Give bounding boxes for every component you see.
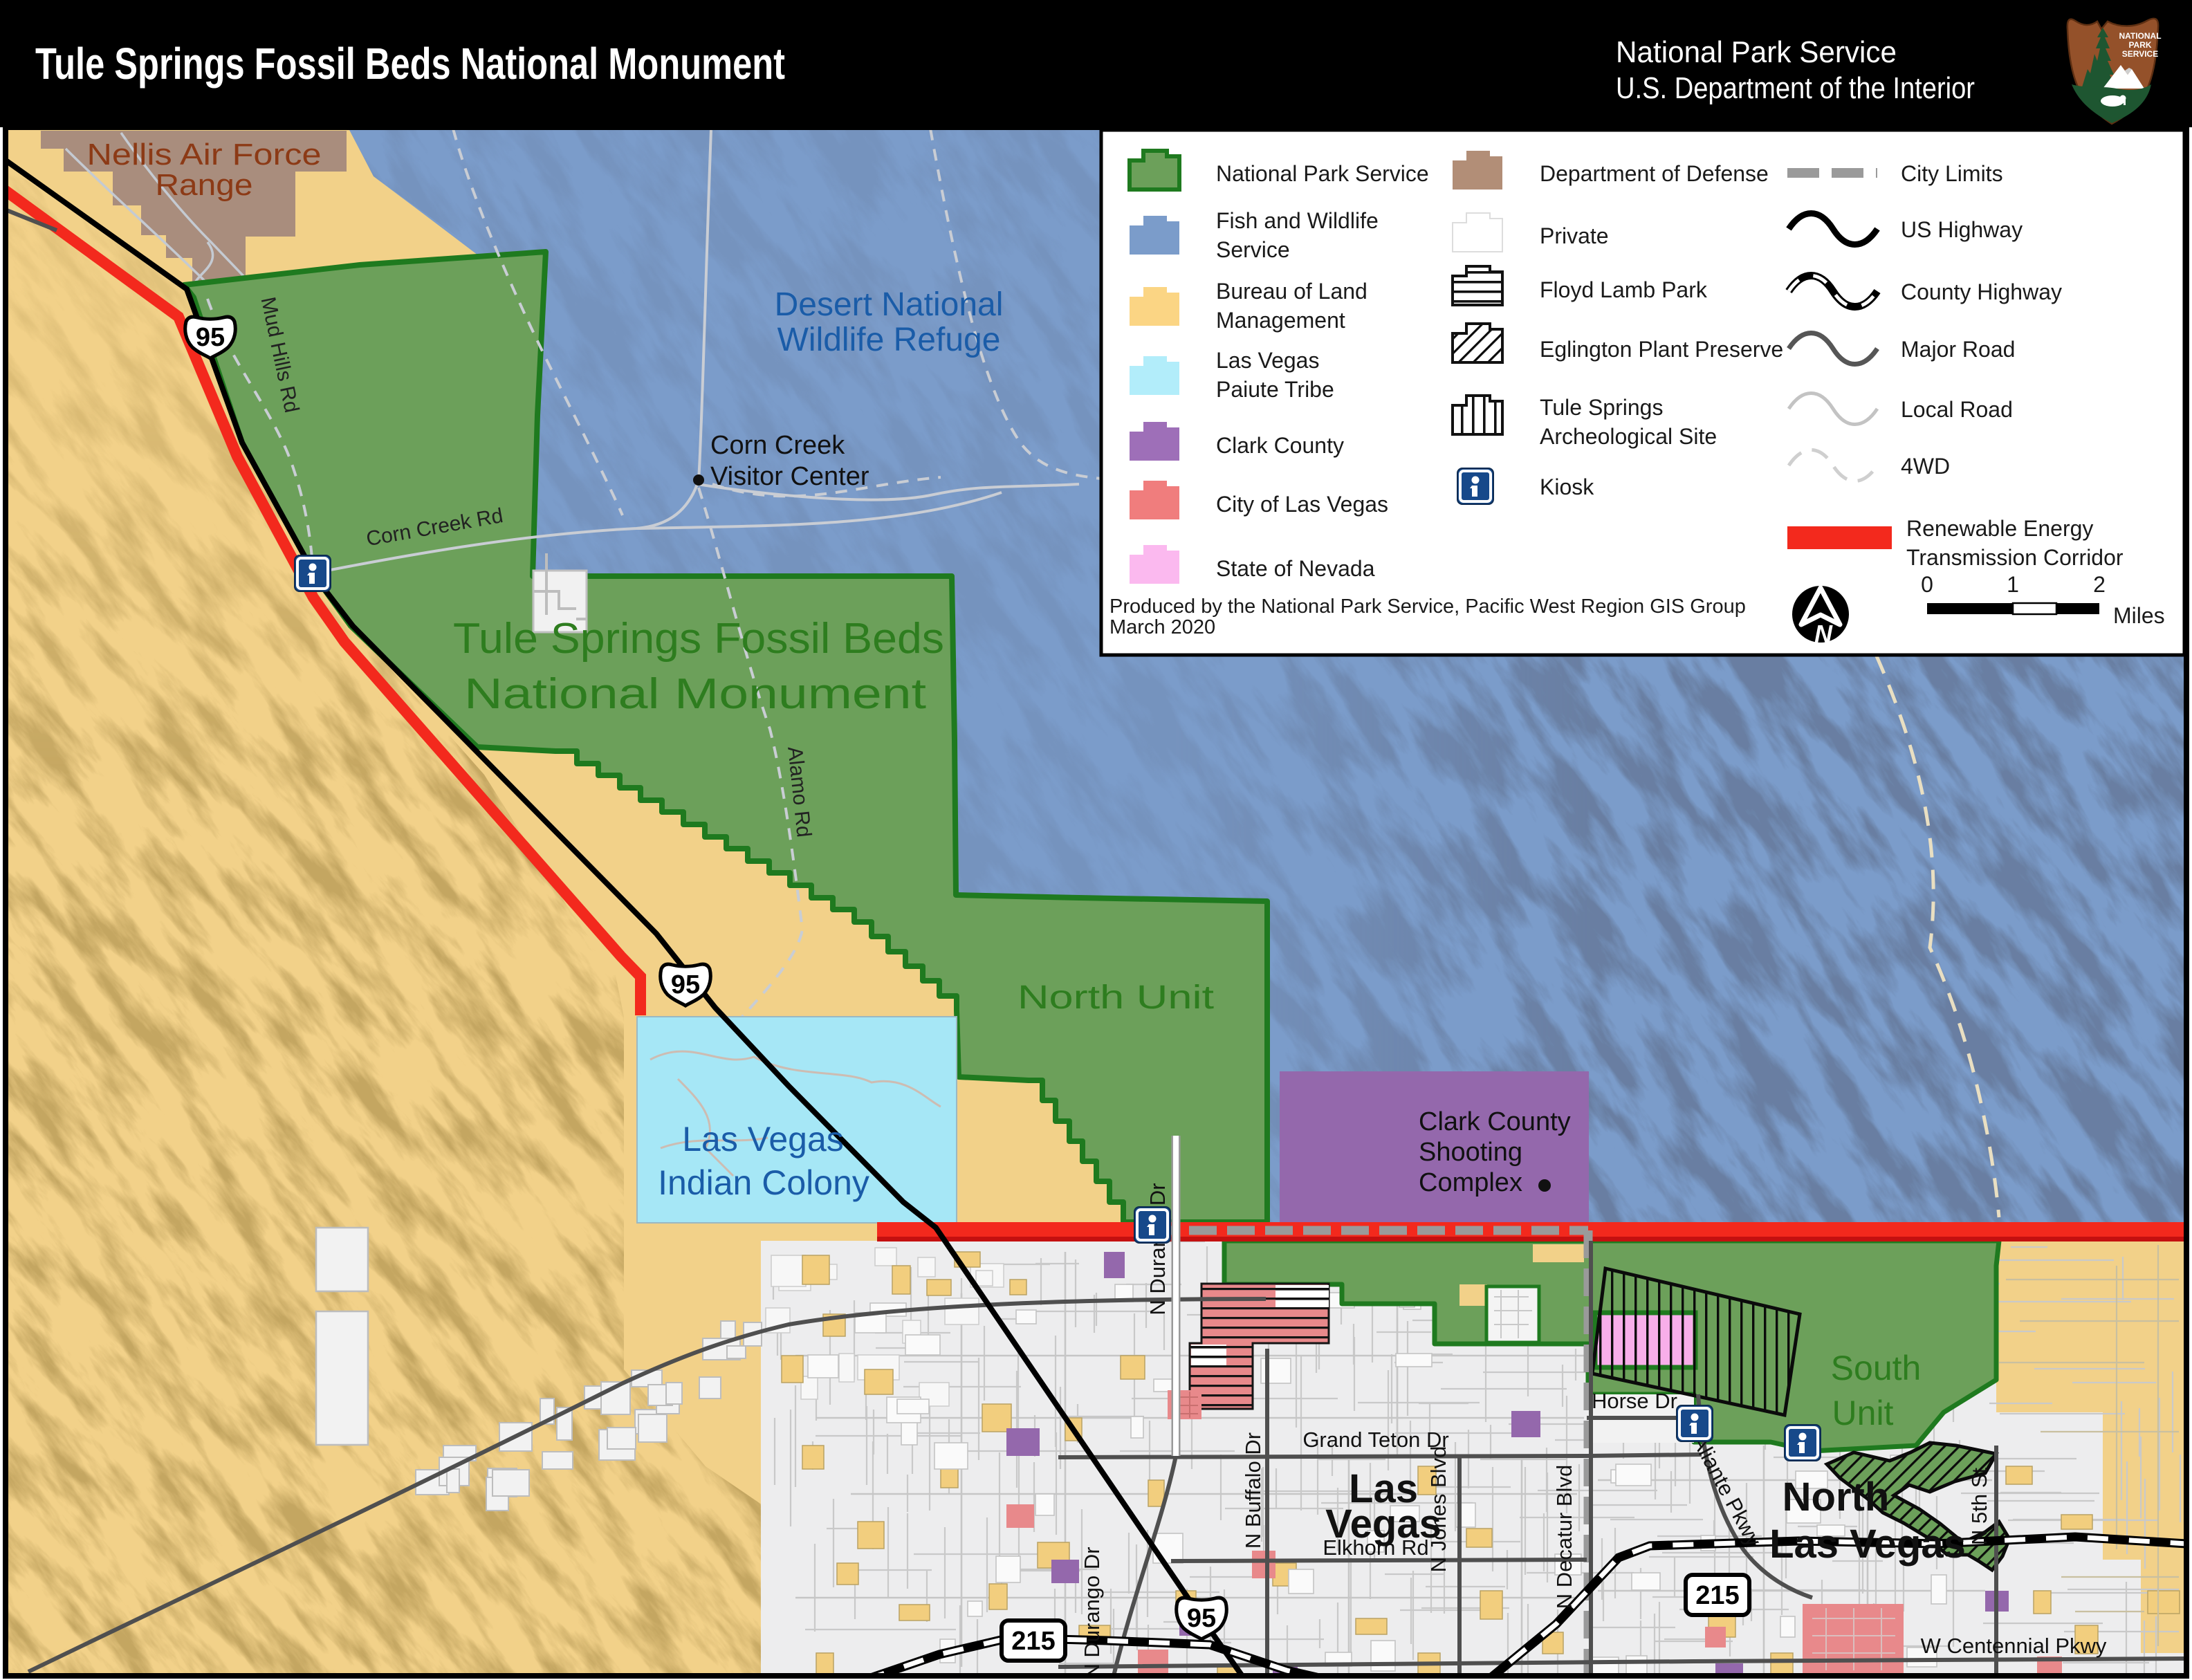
svg-text:National Park Service: National Park Service xyxy=(1616,35,1897,69)
svg-text:N Durango Dr: N Durango Dr xyxy=(1080,1547,1104,1679)
svg-text:Floyd Lamb Park: Floyd Lamb Park xyxy=(1540,277,1708,302)
svg-text:Paiute Tribe: Paiute Tribe xyxy=(1216,377,1334,402)
svg-text:Major Road: Major Road xyxy=(1901,337,2015,362)
svg-text:N 5th St: N 5th St xyxy=(1967,1468,1991,1545)
svg-text:Complex: Complex xyxy=(1419,1168,1522,1197)
svg-text:City Limits: City Limits xyxy=(1901,161,2003,186)
svg-text:Las Vegas: Las Vegas xyxy=(1769,1522,1966,1567)
svg-text:City of Las Vegas: City of Las Vegas xyxy=(1216,492,1388,517)
svg-text:PARK: PARK xyxy=(2128,40,2151,50)
svg-text:N Decatur Blvd: N Decatur Blvd xyxy=(1552,1465,1576,1609)
svg-text:Fish and Wildlife: Fish and Wildlife xyxy=(1216,208,1379,233)
svg-text:County Highway: County Highway xyxy=(1901,279,2062,304)
svg-text:Tule Springs Fossil Beds Natio: Tule Springs Fossil Beds National Monume… xyxy=(35,39,785,89)
svg-text:National Park Service: National Park Service xyxy=(1216,161,1429,186)
svg-text:W Centennial Pkwy: W Centennial Pkwy xyxy=(1921,1634,2107,1658)
svg-text:Miles: Miles xyxy=(2113,603,2165,628)
svg-text:Local Road: Local Road xyxy=(1901,397,2013,422)
svg-text:Desert National: Desert National xyxy=(775,286,1004,323)
svg-text:North: North xyxy=(1783,1475,1890,1520)
svg-text:US Highway: US Highway xyxy=(1901,217,2023,242)
svg-text:Range: Range xyxy=(156,168,253,202)
svg-text:Corn Creek: Corn Creek xyxy=(710,431,845,460)
svg-text:N Jones Blvd: N Jones Blvd xyxy=(1426,1446,1450,1573)
svg-text:State of Nevada: State of Nevada xyxy=(1216,556,1375,581)
svg-text:Management: Management xyxy=(1216,308,1345,333)
svg-text:Kiosk: Kiosk xyxy=(1540,474,1594,499)
svg-text:1: 1 xyxy=(2007,572,2019,597)
svg-text:Clark County: Clark County xyxy=(1419,1107,1571,1136)
svg-text:South: South xyxy=(1831,1349,1922,1387)
svg-text:Shooting: Shooting xyxy=(1419,1138,1522,1167)
svg-text:Clark County: Clark County xyxy=(1216,433,1344,458)
svg-text:Bureau of Land: Bureau of Land xyxy=(1216,279,1367,304)
svg-text:N Buffalo Dr: N Buffalo Dr xyxy=(1241,1432,1265,1549)
svg-text:Tule Springs: Tule Springs xyxy=(1540,395,1663,420)
svg-text:Elkhorn Rd: Elkhorn Rd xyxy=(1323,1535,1428,1560)
svg-text:March 2020: March 2020 xyxy=(1109,616,1215,638)
svg-text:2: 2 xyxy=(2093,572,2106,597)
svg-text:U.S. Department of the Interio: U.S. Department of the Interior xyxy=(1616,71,1975,105)
svg-text:Transmission Corridor: Transmission Corridor xyxy=(1906,545,2124,570)
svg-text:Produced by the National Park: Produced by the National Park Service, P… xyxy=(1109,596,1746,618)
svg-text:4WD: 4WD xyxy=(1901,454,1950,479)
svg-text:Nellis Air Force: Nellis Air Force xyxy=(87,138,322,172)
svg-text:Department of Defense: Department of Defense xyxy=(1540,161,1769,186)
svg-text:0: 0 xyxy=(1921,572,1933,597)
svg-text:National Monument: National Monument xyxy=(464,670,926,718)
svg-text:N: N xyxy=(1814,620,1833,648)
svg-text:Private: Private xyxy=(1540,223,1609,248)
svg-text:SERVICE: SERVICE xyxy=(2122,49,2158,59)
svg-text:Unit: Unit xyxy=(1832,1394,1894,1432)
svg-text:Indian Colony: Indian Colony xyxy=(658,1163,869,1202)
svg-text:North Unit: North Unit xyxy=(1017,979,1214,1016)
svg-text:NATIONAL: NATIONAL xyxy=(2119,31,2161,41)
svg-text:Las Vegas: Las Vegas xyxy=(1216,348,1319,373)
svg-text:Eglington Plant Preserve: Eglington Plant Preserve xyxy=(1540,337,1783,362)
svg-text:Visitor Center: Visitor Center xyxy=(710,462,869,491)
svg-text:Tule Springs Fossil Beds: Tule Springs Fossil Beds xyxy=(453,615,944,663)
svg-text:Horse Dr: Horse Dr xyxy=(1592,1389,1677,1413)
svg-text:Service: Service xyxy=(1216,237,1290,262)
svg-text:Archeological Site: Archeological Site xyxy=(1540,424,1717,449)
svg-text:Renewable Energy: Renewable Energy xyxy=(1906,516,2093,541)
svg-text:Wildlife Refuge: Wildlife Refuge xyxy=(777,322,1001,358)
svg-text:Las Vegas: Las Vegas xyxy=(682,1120,844,1159)
svg-text:N Durango Dr: N Durango Dr xyxy=(1145,1183,1170,1315)
